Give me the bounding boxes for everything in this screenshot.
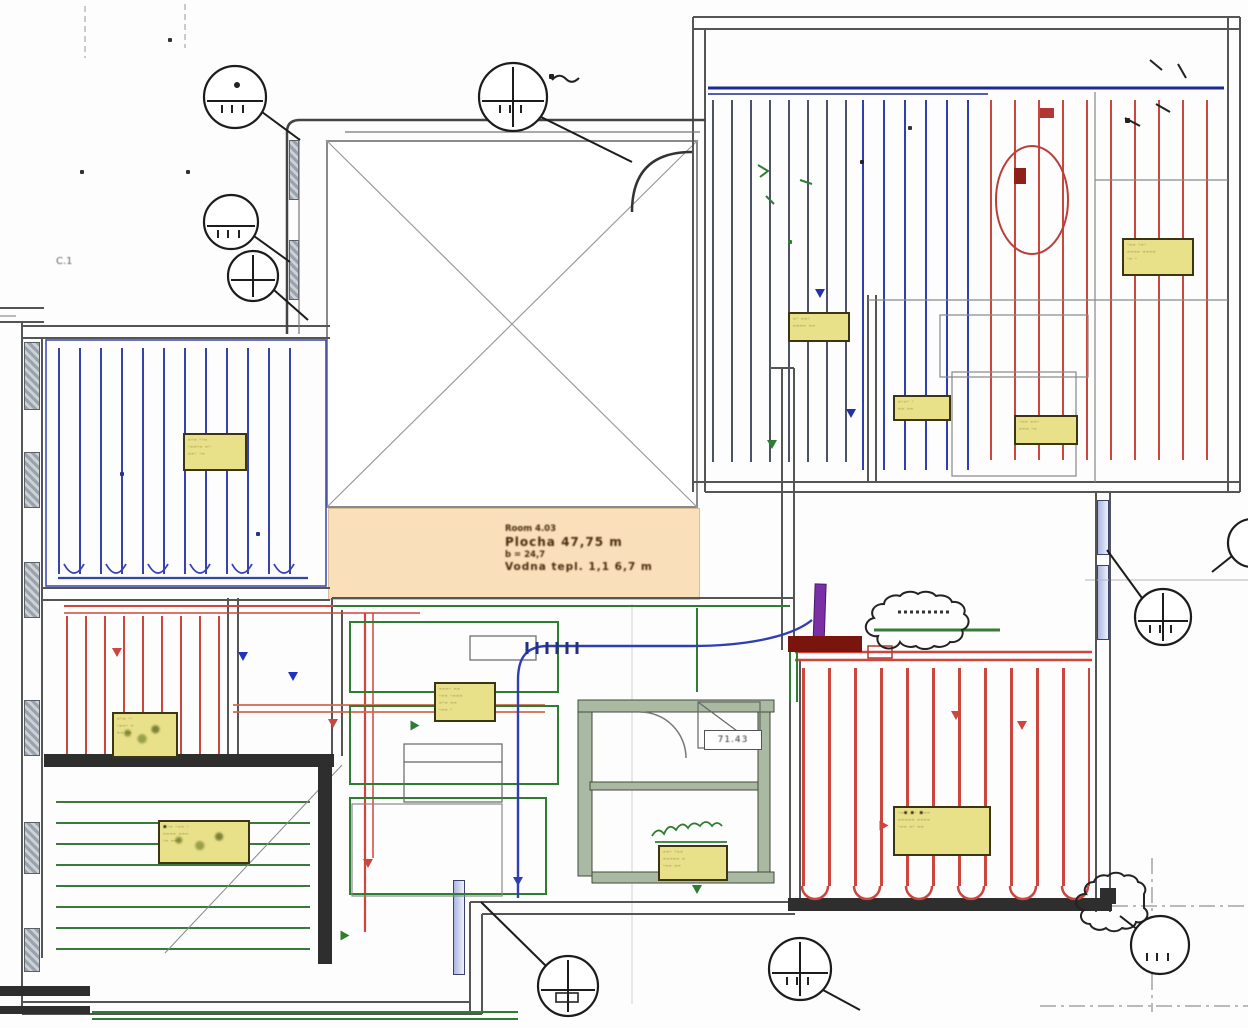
flow-arrow-9	[112, 648, 122, 657]
flow-arrow-4	[846, 409, 856, 418]
flow-arrow-5	[363, 859, 373, 868]
flow-arrow-13	[341, 931, 350, 941]
flow-arrow-0	[513, 877, 523, 886]
flow-arrow-6	[880, 821, 889, 831]
flow-arrow-11	[411, 721, 420, 731]
flow-arrow-14	[767, 440, 777, 449]
flow-arrow-8	[328, 719, 338, 728]
flow-arrow-10	[951, 711, 961, 720]
flow-arrow-2	[238, 652, 248, 661]
arrow-layer	[0, 0, 1248, 1028]
flow-arrow-1	[815, 289, 825, 298]
flow-arrow-3	[288, 672, 298, 681]
floor-plan-canvas: Room 4.03 Plocha 47,75 m b = 24,7 Vodna …	[0, 0, 1248, 1028]
flow-arrow-12	[692, 885, 702, 894]
flow-arrow-7	[1017, 721, 1027, 730]
